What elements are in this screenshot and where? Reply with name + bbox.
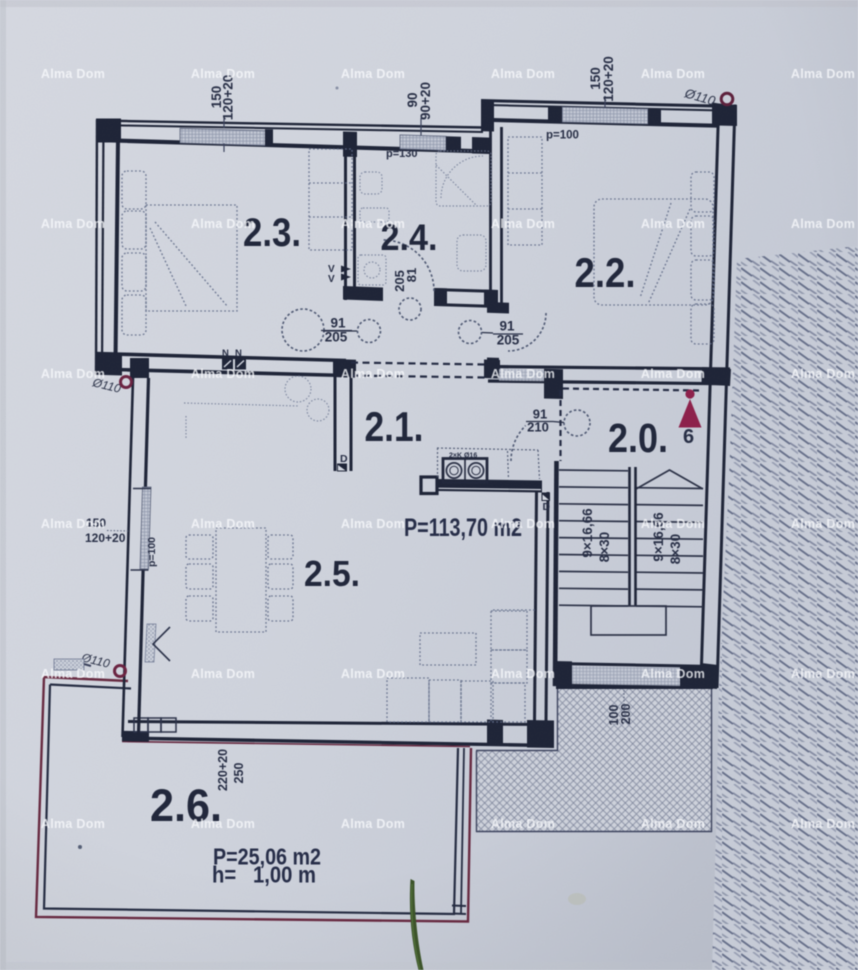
svg-text:Alma Dom: Alma Dom <box>341 367 405 381</box>
svg-text:Alma Dom: Alma Dom <box>191 217 255 231</box>
svg-text:Alma Dom: Alma Dom <box>491 67 555 81</box>
svg-text:Alma Dom: Alma Dom <box>641 367 705 381</box>
svg-text:Alma Dom: Alma Dom <box>41 517 105 531</box>
svg-text:Alma Dom: Alma Dom <box>41 667 105 681</box>
svg-text:Alma Dom: Alma Dom <box>191 367 255 381</box>
svg-text:Alma Dom: Alma Dom <box>491 367 555 381</box>
svg-text:Alma Dom: Alma Dom <box>491 667 555 681</box>
svg-text:Alma Dom: Alma Dom <box>341 817 405 831</box>
svg-text:Alma Dom: Alma Dom <box>641 817 705 831</box>
svg-text:Alma Dom: Alma Dom <box>791 817 855 831</box>
svg-text:Alma Dom: Alma Dom <box>41 67 105 81</box>
svg-text:Alma Dom: Alma Dom <box>41 217 105 231</box>
svg-text:Alma Dom: Alma Dom <box>341 217 405 231</box>
svg-text:Alma Dom: Alma Dom <box>191 517 255 531</box>
svg-text:Alma Dom: Alma Dom <box>641 67 705 81</box>
svg-text:Alma Dom: Alma Dom <box>341 67 405 81</box>
svg-text:Alma Dom: Alma Dom <box>641 517 705 531</box>
svg-text:Alma Dom: Alma Dom <box>491 517 555 531</box>
svg-text:Alma Dom: Alma Dom <box>191 667 255 681</box>
svg-text:Alma Dom: Alma Dom <box>791 367 855 381</box>
svg-text:Alma Dom: Alma Dom <box>641 667 705 681</box>
svg-text:Alma Dom: Alma Dom <box>341 517 405 531</box>
svg-text:Alma Dom: Alma Dom <box>191 67 255 81</box>
svg-text:Alma Dom: Alma Dom <box>491 817 555 831</box>
svg-text:Alma Dom: Alma Dom <box>41 367 105 381</box>
svg-text:Alma Dom: Alma Dom <box>791 667 855 681</box>
svg-text:Alma Dom: Alma Dom <box>791 217 855 231</box>
svg-text:Alma Dom: Alma Dom <box>41 817 105 831</box>
svg-text:Alma Dom: Alma Dom <box>791 517 855 531</box>
svg-text:Alma Dom: Alma Dom <box>641 217 705 231</box>
svg-text:Alma Dom: Alma Dom <box>341 667 405 681</box>
svg-text:Alma Dom: Alma Dom <box>191 817 255 831</box>
svg-text:Alma Dom: Alma Dom <box>791 67 855 81</box>
svg-text:Alma Dom: Alma Dom <box>491 217 555 231</box>
